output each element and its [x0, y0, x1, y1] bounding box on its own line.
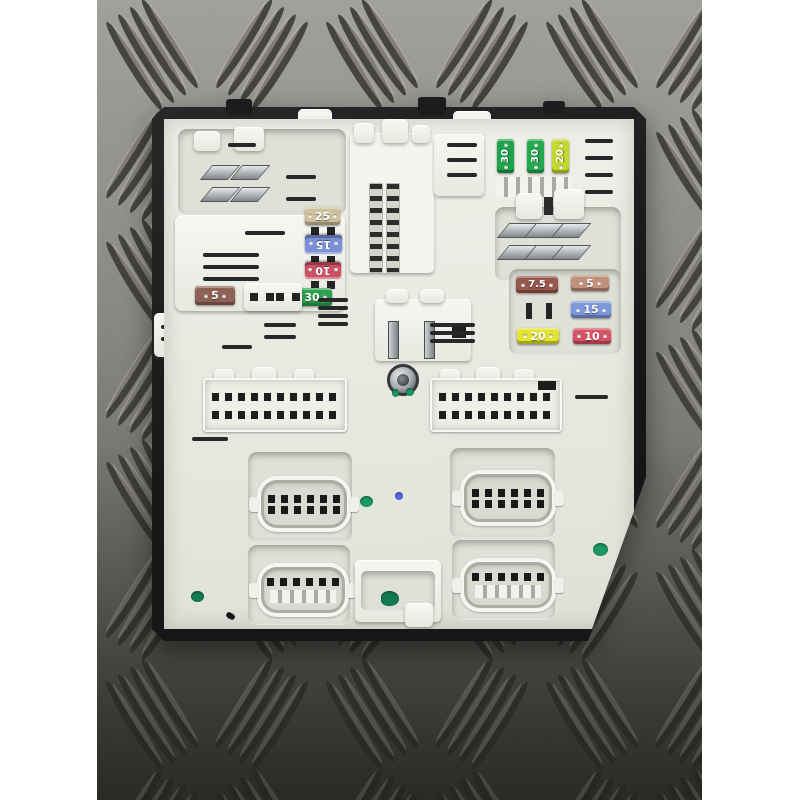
pin-ladder [386, 183, 400, 273]
slot-dash [585, 173, 613, 177]
empty-slot-pin [546, 303, 552, 319]
black-speck [225, 611, 236, 621]
case-top-lug [226, 99, 252, 115]
plastic-tooth [382, 119, 408, 143]
fuse-box: 25 15 10 30 5 [152, 107, 646, 641]
slot-dash [264, 323, 296, 327]
screw-center [397, 374, 409, 386]
oval-connector-top-right [460, 470, 556, 526]
green-paint-dot [360, 496, 373, 507]
fuse-15a-right: 15 [571, 301, 611, 318]
oval-connector-bottom-right [460, 558, 556, 612]
plastic-tooth [412, 125, 430, 143]
fuse-amp-label: 30 [530, 149, 540, 163]
case-top-lug [418, 97, 446, 115]
plastic-tooth [234, 127, 264, 151]
metal-pin [388, 321, 399, 359]
fuse-amp-label: 5 [211, 290, 219, 301]
fuse-7p5a: 7.5 [516, 276, 558, 293]
slot-dash [575, 395, 608, 399]
multipin-strip-left [203, 378, 347, 432]
fuse-amp-label: 15 [316, 239, 331, 250]
case-top-lug [543, 101, 565, 113]
fuse-20a-vertical: 20 [552, 139, 569, 173]
slot-dash [264, 335, 296, 339]
fuse-amp-label: 7.5 [528, 280, 546, 290]
slot-dash [447, 173, 477, 177]
pin-grid [267, 578, 339, 586]
plastic-tooth [194, 131, 220, 151]
empty-slot-pin [526, 303, 532, 319]
fuse-amp-label: 30 [500, 149, 510, 163]
slot-dash [318, 314, 348, 318]
green-paint-dot [392, 389, 399, 397]
green-paint-dot [406, 388, 414, 396]
fuse-10a: 10 [305, 262, 341, 279]
slot-dash [228, 143, 256, 147]
slot-dash [585, 156, 613, 160]
fuse-box-board: 25 15 10 30 5 [164, 119, 634, 629]
fuse-25a: 25 [305, 207, 340, 225]
slot-dash [430, 339, 475, 343]
pin-grid [268, 495, 340, 514]
fuse-amp-label: 5 [586, 278, 594, 289]
oval-connector-bottom-left [257, 563, 349, 617]
fuse-30a-vertical: 30 [527, 139, 544, 173]
slot-dash [203, 277, 259, 281]
fuse-socket [250, 293, 274, 301]
slot-dash [203, 253, 259, 257]
slot-dash [222, 345, 252, 349]
multipin-strip-right [430, 378, 562, 432]
slot-dash [286, 175, 316, 179]
connector-teeth [475, 585, 541, 598]
pin-slot [544, 197, 553, 215]
fuse-5a-right: 5 [571, 275, 609, 291]
blue-paint-dot [395, 492, 403, 500]
oval-connector-top-left [257, 476, 351, 532]
connector-teeth [270, 590, 336, 603]
fuse-amp-label: 10 [584, 331, 599, 342]
fuse-socket [276, 293, 300, 301]
slot-dash [192, 437, 228, 441]
fuse-amp-label: 20 [530, 331, 545, 342]
pin-ladder [369, 183, 383, 273]
green-paint-dot [191, 591, 204, 602]
fuse-10a-right: 10 [573, 328, 611, 344]
pin-row [439, 411, 553, 419]
slot-dash [318, 322, 348, 326]
plastic-tooth [554, 189, 584, 219]
green-paint-dot [593, 543, 608, 556]
fuse-amp-label: 20 [555, 149, 565, 163]
plastic-tooth [420, 289, 444, 303]
fuse-15a: 15 [305, 235, 342, 254]
slot-dash [585, 190, 613, 194]
slot-dash [318, 306, 348, 310]
fusebox-photo: 25 15 10 30 5 [97, 0, 702, 800]
slot-dash [318, 298, 348, 302]
slot-dash [203, 265, 259, 269]
fuse-5a: 5 [195, 286, 235, 305]
fuse-amp-label: 15 [583, 304, 598, 315]
fuse-socket [311, 227, 335, 235]
pin-grid [472, 489, 544, 508]
pin-row [212, 393, 338, 401]
plastic-tooth [354, 123, 374, 143]
slot-dash [430, 323, 475, 327]
pin-row [439, 393, 553, 401]
plastic-tooth [386, 289, 408, 303]
slot-dash [430, 331, 475, 335]
green-paint-blob [381, 591, 399, 606]
corner-slot [538, 381, 556, 390]
fuse-20a-right: 20 [517, 328, 559, 344]
fuse-30a-vertical: 30 [497, 139, 514, 173]
bottom-tab [405, 603, 433, 627]
pin-grid [472, 573, 544, 581]
slot-dash [286, 197, 316, 201]
slot-dash [447, 158, 477, 162]
fuse-amp-label: 25 [315, 211, 330, 222]
slot-dash [447, 143, 477, 147]
slot-dash [585, 139, 613, 143]
fuse-amp-label: 10 [315, 265, 330, 276]
slot-dash [245, 231, 285, 235]
pin-row [212, 411, 338, 419]
plastic-tooth [516, 193, 542, 219]
